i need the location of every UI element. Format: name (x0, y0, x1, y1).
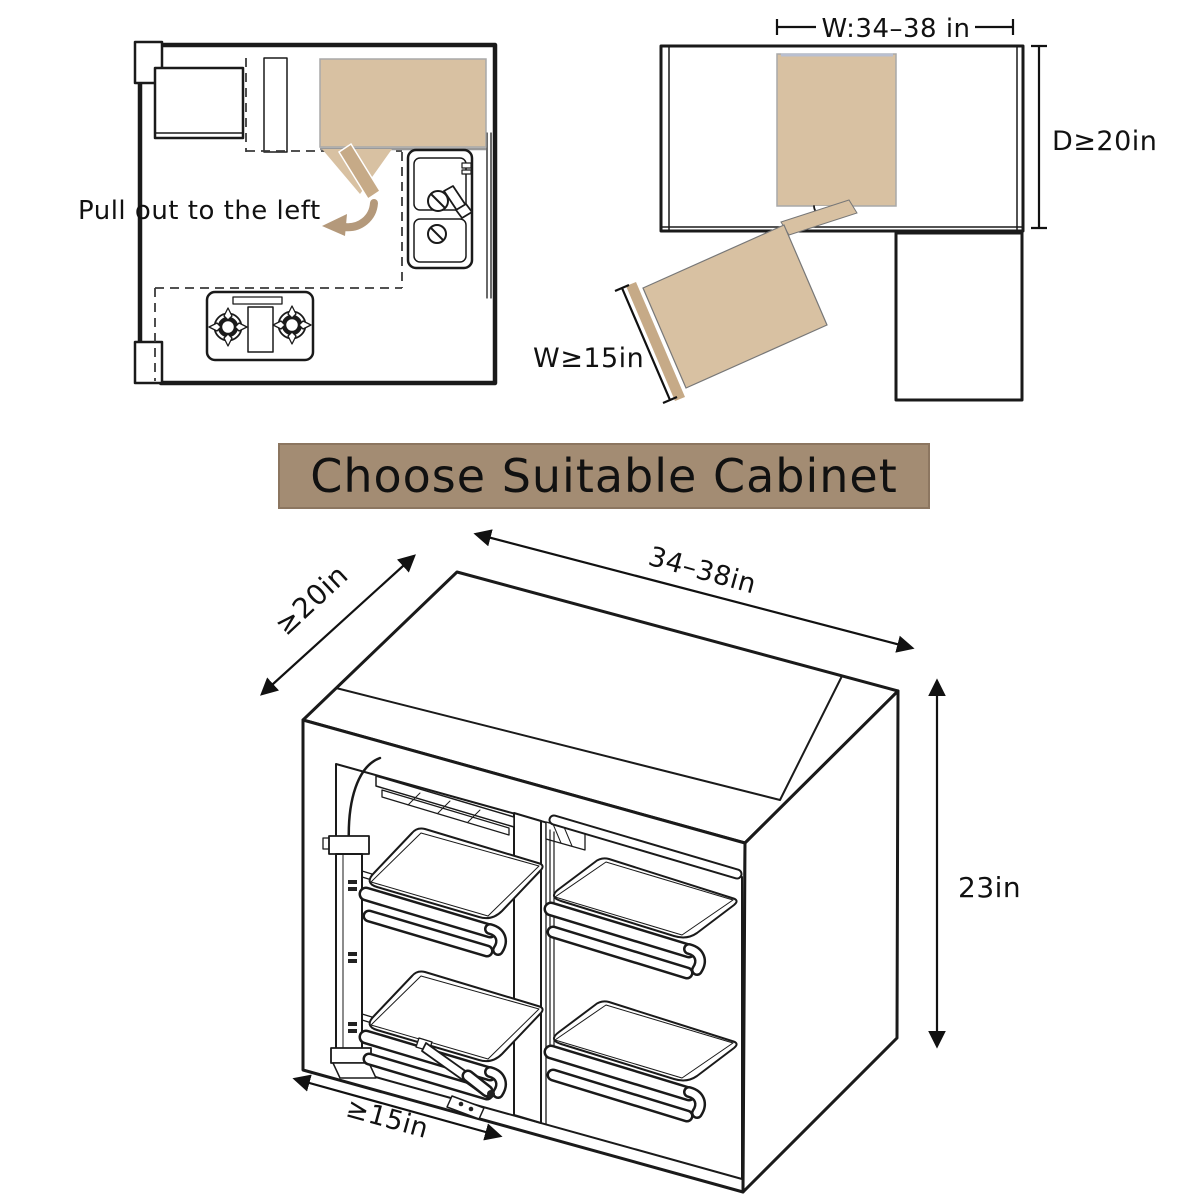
corner-cabinet-plan (320, 59, 486, 147)
wall-corner-bottom-left (135, 342, 162, 383)
window-lines (487, 133, 491, 298)
cabinet-depth-label: ≥20in (268, 558, 354, 642)
stove-plan (207, 292, 313, 360)
tray-width-label: W≥15in (533, 343, 644, 374)
corner-clearance-diagram: W:34–38 in D≥20in W≥15in (533, 14, 1157, 403)
corner-cabinet-clearance (777, 54, 896, 206)
counter-return-plan (896, 233, 1022, 400)
curved-arrow-icon (344, 203, 374, 227)
cabinet-3d-diagram: ≥20in 34–38in 23in ≥15in (262, 534, 1021, 1192)
banner-title: Choose Suitable Cabinet (310, 449, 898, 503)
diagram-canvas: Pull out to the left W:34–38 in D≥20in W… (0, 0, 1200, 1200)
fridge-plan (155, 68, 243, 138)
clearance-depth-label: D≥20in (1052, 126, 1157, 157)
pull-out-callout: Pull out to the left (78, 196, 321, 226)
sink-plan (408, 150, 472, 268)
banner: Choose Suitable Cabinet (279, 444, 929, 508)
curved-arrow-head (322, 214, 347, 236)
cabinet-height-label: 23in (958, 871, 1021, 904)
depth-dim-lines (1031, 46, 1047, 228)
cabinet-width-label: 34–38in (645, 541, 760, 600)
product-instruction-image: Pull out to the left W:34–38 in D≥20in W… (0, 0, 1200, 1200)
floor-plan: Pull out to the left (78, 42, 495, 383)
counter-divider (264, 58, 287, 152)
clearance-width-label: W:34–38 in (821, 14, 970, 44)
